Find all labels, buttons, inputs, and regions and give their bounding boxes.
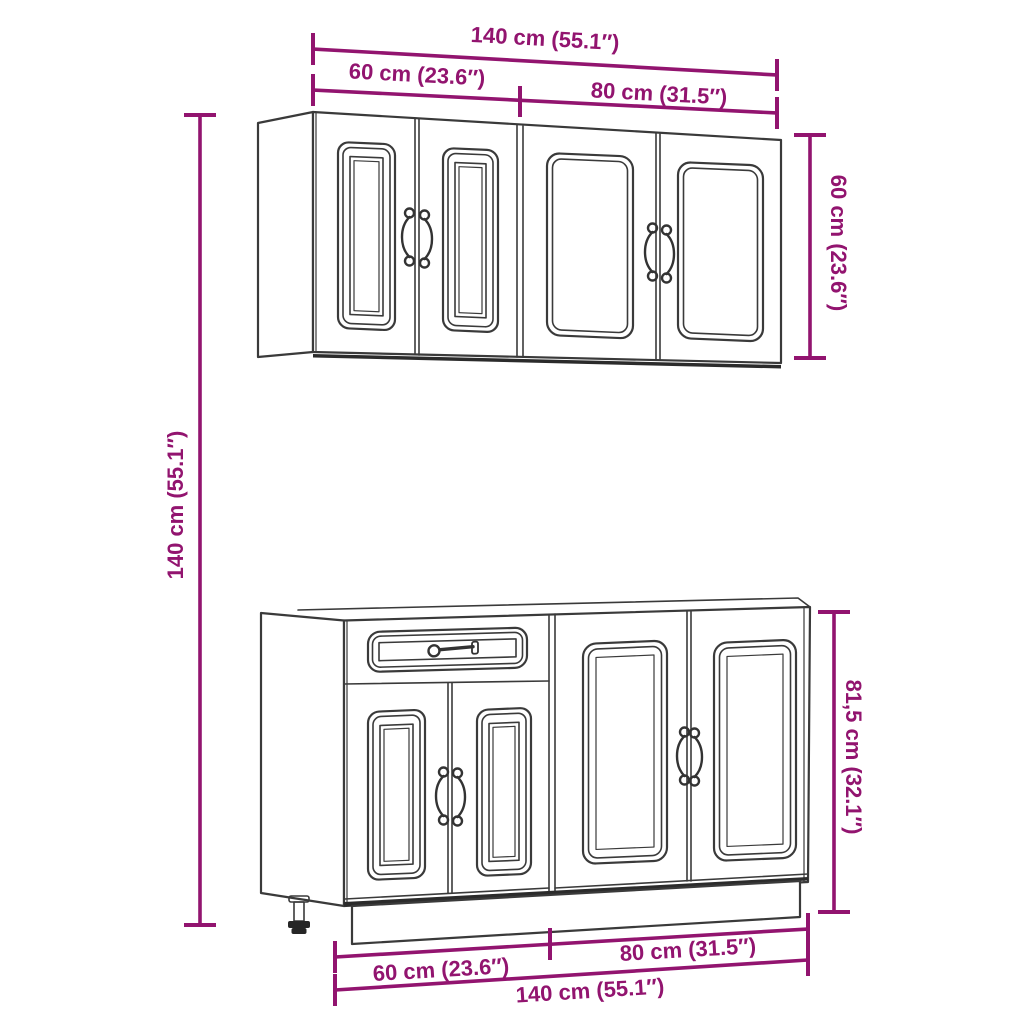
dim-label-top-left: 60 cm (23.6″) — [348, 58, 486, 90]
base-cabinet-drawing — [261, 598, 810, 944]
diagram-canvas: 140 cm (55.1″) 60 cm (23.6″) 80 cm (31.5… — [0, 0, 1024, 1024]
wall-cabinet-side-panel — [258, 112, 313, 357]
dim-label-left-height: 140 cm (55.1″) — [163, 431, 188, 580]
base-cabinet-front — [344, 607, 810, 906]
cabinet-dimension-diagram: 140 cm (55.1″) 60 cm (23.6″) 80 cm (31.5… — [0, 0, 1024, 1024]
dim-label-right-upper: 60 cm (23.6″) — [826, 175, 851, 312]
adjustable-leg — [288, 896, 310, 934]
dim-label-right-lower: 81,5 cm (32.1″) — [841, 680, 866, 835]
wall-cabinet-drawing — [258, 112, 781, 369]
dim-label-top-total: 140 cm (55.1″) — [470, 22, 620, 55]
base-cabinet-side-panel — [261, 613, 344, 906]
